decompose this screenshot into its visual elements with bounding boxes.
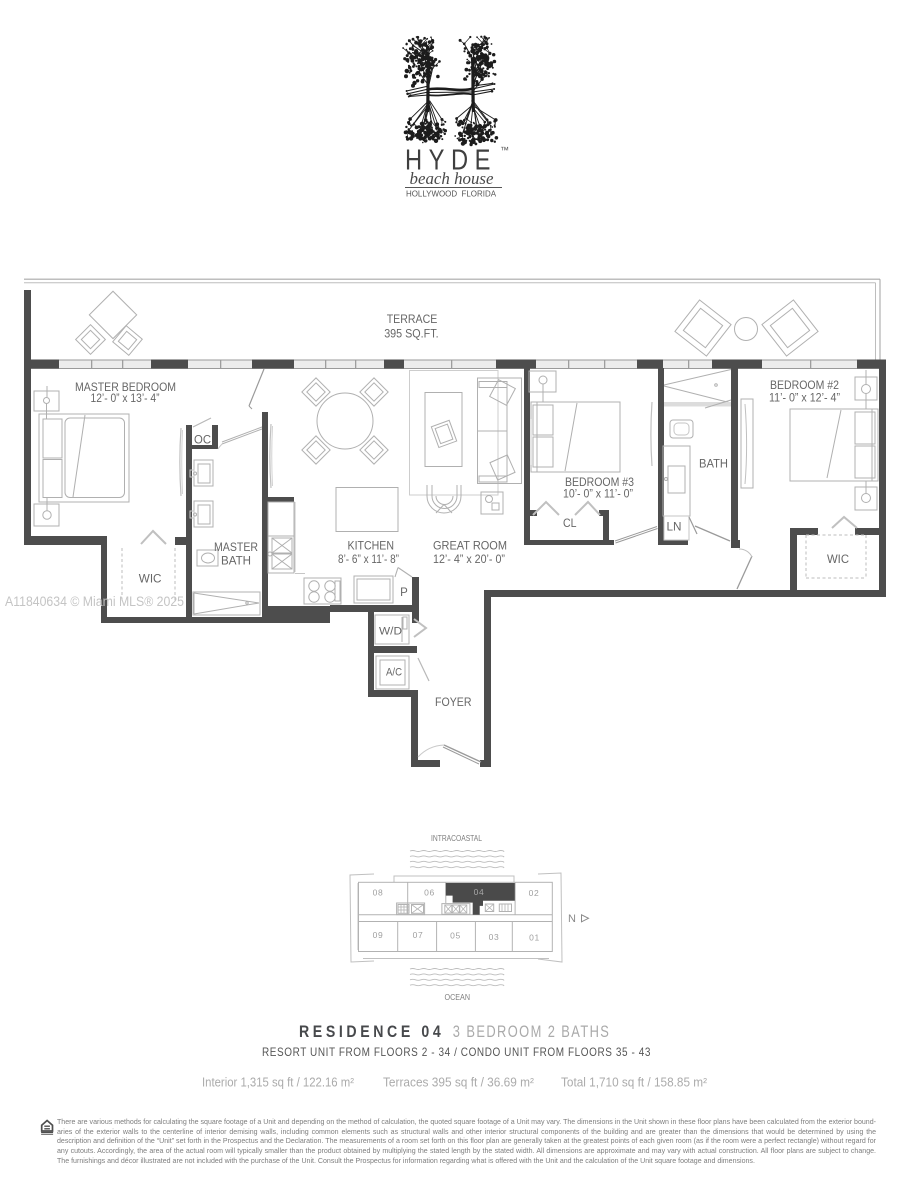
svg-text:Interior 1,315 sq ft / 122.16: Interior 1,315 sq ft / 122.16 m²	[202, 1076, 354, 1090]
svg-text:10’- 0” x 11’- 0”: 10’- 0” x 11’- 0”	[563, 489, 633, 501]
svg-text:Total 1,710 sq ft / 158.85 m²: Total 1,710 sq ft / 158.85 m²	[561, 1076, 707, 1090]
svg-text:LN: LN	[667, 522, 682, 534]
svg-text:01: 01	[529, 933, 540, 943]
svg-text:RESIDENCE 04: RESIDENCE 04	[299, 1023, 444, 1041]
svg-text:05: 05	[450, 931, 461, 941]
svg-text:8’- 6” x 11’- 8”: 8’- 6” x 11’- 8”	[338, 554, 399, 566]
svg-text:02: 02	[529, 888, 540, 898]
svg-text:WIC: WIC	[139, 574, 162, 586]
svg-text:04: 04	[474, 887, 485, 897]
svg-text:Terraces 395 sq ft / 36.69 m²: Terraces 395 sq ft / 36.69 m²	[383, 1076, 534, 1090]
svg-text:A/C: A/C	[386, 667, 402, 679]
svg-text:12’- 4” x 20’- 0”: 12’- 4” x 20’- 0”	[433, 554, 505, 566]
svg-text:P: P	[400, 587, 408, 599]
svg-text:06: 06	[424, 888, 435, 898]
svg-text:FOYER: FOYER	[435, 697, 472, 709]
svg-text:INTRACOASTAL: INTRACOASTAL	[431, 834, 482, 843]
svg-text:KITCHEN: KITCHEN	[348, 541, 395, 553]
svg-text:BATH: BATH	[221, 556, 251, 568]
svg-text:TERRACE: TERRACE	[387, 314, 438, 326]
svg-text:395 SQ.FT.: 395 SQ.FT.	[384, 329, 438, 341]
svg-text:12’- 0” x 13’- 4”: 12’- 0” x 13’- 4”	[91, 393, 160, 405]
svg-text:N: N	[568, 913, 576, 925]
svg-text:BEDROOM #2: BEDROOM #2	[770, 380, 839, 392]
svg-text:GREAT ROOM: GREAT ROOM	[433, 541, 507, 553]
svg-text:OCEAN: OCEAN	[445, 993, 471, 1002]
svg-text:07: 07	[413, 930, 424, 940]
svg-text:A11840634 © Miami MLS® 2025: A11840634 © Miami MLS® 2025	[5, 594, 184, 609]
svg-text:W/D: W/D	[379, 626, 402, 638]
svg-text:09: 09	[373, 930, 384, 940]
svg-text:™: ™	[500, 145, 509, 155]
svg-text:08: 08	[373, 888, 384, 898]
svg-text:RESORT UNIT FROM FLOORS 2 - 34: RESORT UNIT FROM FLOORS 2 - 34 / CONDO U…	[262, 1045, 651, 1059]
svg-text:CL: CL	[563, 518, 577, 530]
svg-text:HOLLYWOOD FLORIDA: HOLLYWOOD FLORIDA	[406, 190, 497, 199]
svg-text:BATH: BATH	[699, 459, 728, 471]
svg-text:beach house: beach house	[410, 169, 494, 188]
svg-text:03: 03	[489, 932, 500, 942]
svg-text:BEDROOM #3: BEDROOM #3	[565, 477, 634, 489]
svg-text:3 BEDROOM 2 BATHS: 3 BEDROOM 2 BATHS	[453, 1023, 611, 1041]
svg-text:OC: OC	[194, 435, 211, 447]
svg-text:MASTER: MASTER	[214, 542, 258, 554]
svg-text:WIC: WIC	[827, 554, 849, 566]
svg-text:11’- 0” x 12’- 4”: 11’- 0” x 12’- 4”	[769, 393, 840, 405]
